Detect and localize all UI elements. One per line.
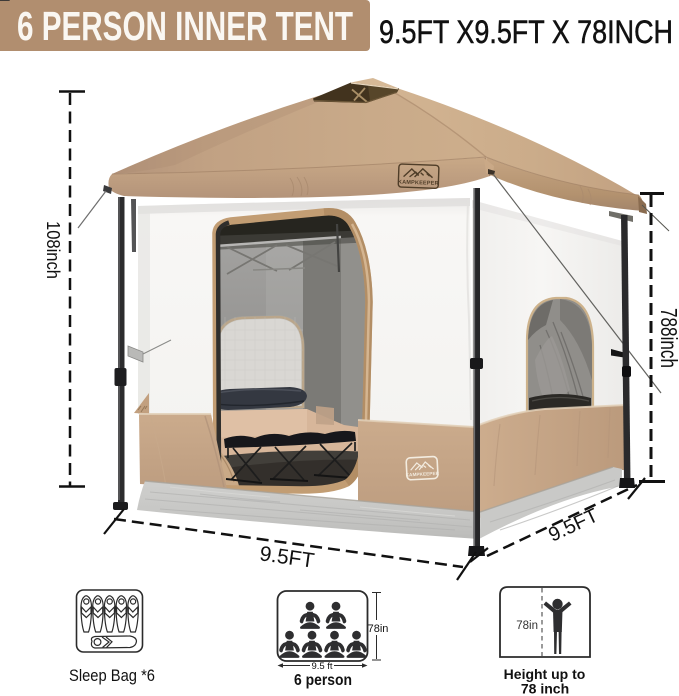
- svg-text:9.5FT: 9.5FT: [258, 542, 316, 572]
- svg-text:78in: 78in: [368, 623, 389, 635]
- svg-text:78in: 78in: [516, 620, 538, 632]
- svg-text:6 PERSON INNER TENT: 6 PERSON INNER TENT: [17, 3, 353, 49]
- svg-text:78 inch: 78 inch: [521, 681, 569, 696]
- svg-text:9.5FT X9.5FT X 78INCH: 9.5FT X9.5FT X 78INCH: [379, 14, 673, 50]
- svg-text:6 person: 6 person: [294, 672, 352, 689]
- svg-text:9.5 ft: 9.5 ft: [311, 661, 332, 672]
- svg-text:788inch: 788inch: [656, 308, 679, 368]
- svg-text:Sleep Bag *6: Sleep Bag *6: [69, 666, 155, 685]
- svg-text:108inch: 108inch: [43, 221, 63, 279]
